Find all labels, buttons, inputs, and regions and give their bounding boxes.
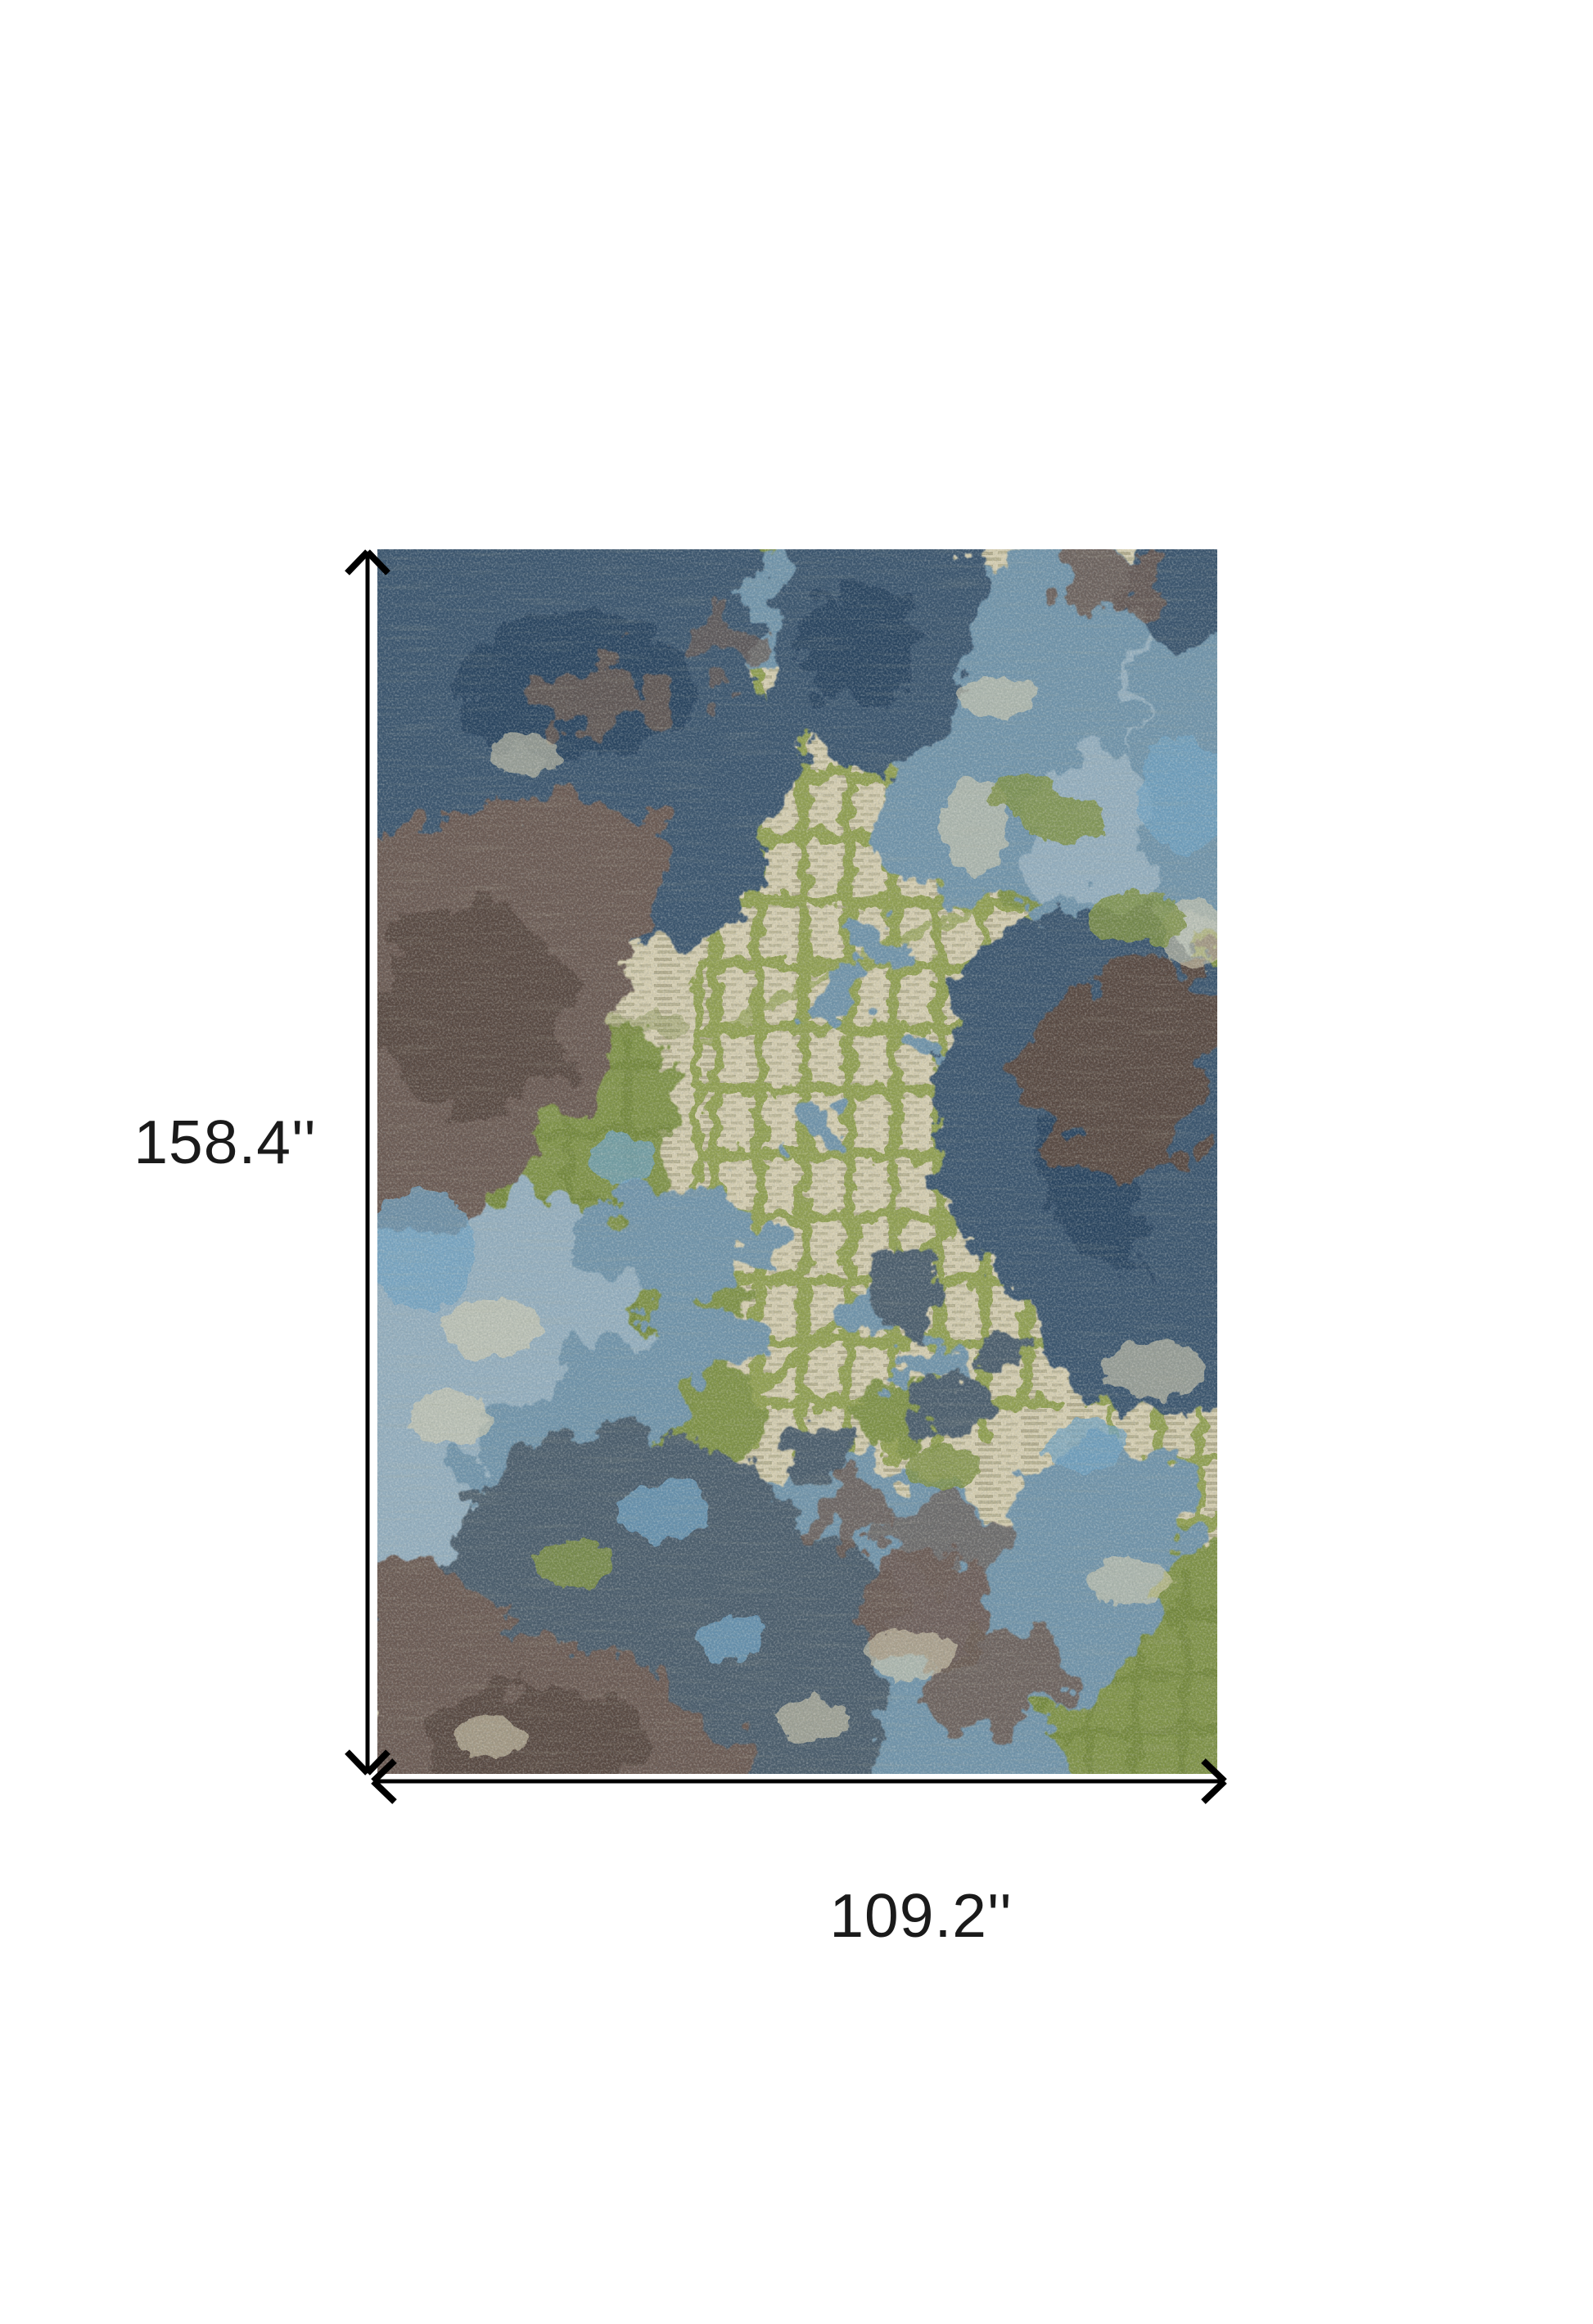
rug-texture-noise <box>377 549 1217 1774</box>
product-dimension-image: 158.4'' 109.2'' <box>0 0 1593 2324</box>
height-dimension-label: 158.4'' <box>94 1112 356 1173</box>
rug-image <box>377 549 1217 1774</box>
rug-artwork <box>377 549 1217 1774</box>
width-dimension-label: 109.2'' <box>790 1885 1052 1947</box>
